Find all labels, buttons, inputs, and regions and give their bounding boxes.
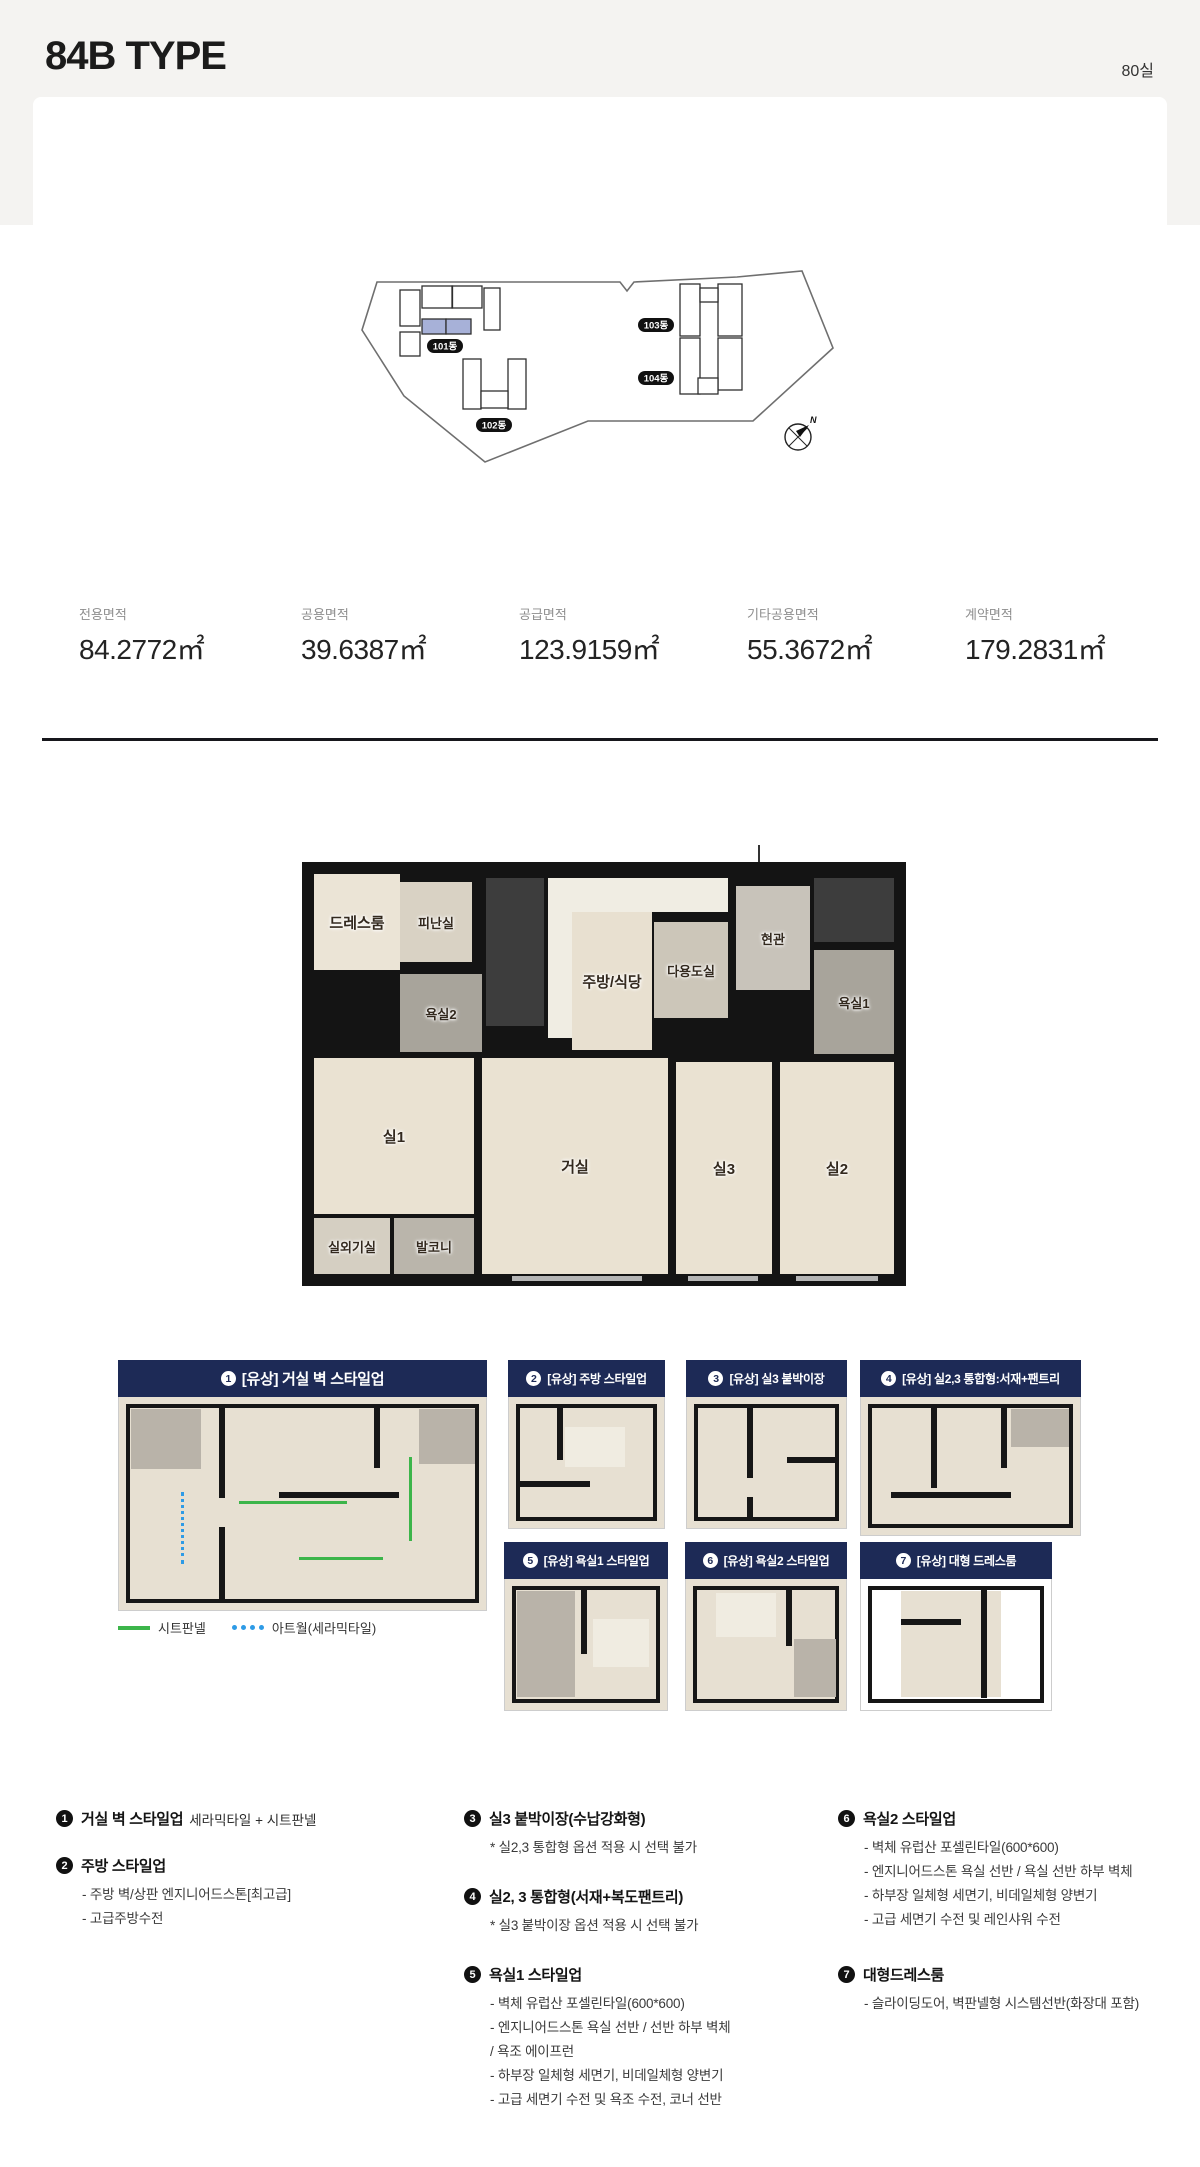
option-thumb-4: 4 [유상] 실2,3 통합형:서재+팬트리 xyxy=(860,1360,1081,1536)
area-label: 전용면적 xyxy=(79,604,127,623)
note-line: - 하부장 일체형 세면기, 비데일체형 양변기 xyxy=(864,1884,1168,1908)
wall-segment xyxy=(747,1497,753,1517)
wall-segment xyxy=(747,1408,753,1478)
building-unit xyxy=(452,286,453,308)
building-unit xyxy=(400,290,420,326)
area-label: 계약면적 xyxy=(965,604,1013,623)
building-unit xyxy=(463,359,481,409)
option-thumb-2: 2 [유상] 주방 스타일업 xyxy=(508,1360,665,1529)
note-title: 욕실1 스타일업 xyxy=(489,1964,582,1985)
note-title: 주방 스타일업 xyxy=(81,1855,166,1876)
wall-segment xyxy=(981,1590,987,1698)
building-unit xyxy=(508,359,526,409)
legend-label: 아트월(세라믹타일) xyxy=(272,1618,376,1637)
note-title: 실2, 3 통합형(서재+복도팬트리) xyxy=(489,1886,683,1907)
option-thumb-image xyxy=(686,1397,847,1529)
building-unit xyxy=(680,284,700,336)
utility-shaft xyxy=(814,878,894,942)
option-title: [유상] 거실 벽 스타일업 xyxy=(242,1368,385,1389)
note-item: 2 주방 스타일업 - 주방 벽/상판 엔지니어드스톤[최고급] - 고급주방수… xyxy=(56,1855,406,1931)
room-bath1: 욕실1 xyxy=(814,950,894,1054)
note-title: 실3 붙박이장(수납강화형) xyxy=(489,1808,645,1829)
room-2: 실2 xyxy=(780,1062,894,1274)
option-title: [유상] 주방 스타일업 xyxy=(547,1370,646,1387)
notes-column-1: 1 거실 벽 스타일업 세라믹타일 + 시트판넬 2 주방 스타일업 - 주방 … xyxy=(56,1808,406,1957)
building-label: 101동 xyxy=(433,342,458,353)
option-thumb-header: 5 [유상] 욕실1 스타일업 xyxy=(504,1542,668,1579)
window xyxy=(796,1276,878,1281)
note-line: * 실3 붙박이장 옵션 적용 시 선택 불가 xyxy=(490,1914,824,1938)
note-item: 6 욕실2 스타일업 - 벽체 유럽산 포셀린타일(600*600) - 엔지니… xyxy=(838,1808,1168,1932)
option-thumb-image xyxy=(860,1579,1052,1711)
room-refuge: 피난실 xyxy=(400,882,472,962)
option-number-badge: 6 xyxy=(703,1553,718,1568)
window xyxy=(688,1276,758,1281)
building-label: 104동 xyxy=(644,374,669,385)
fixture-patch xyxy=(716,1593,776,1637)
note-line: - 엔지니어드스톤 욕실 선반 / 욕실 선반 하부 벽체 xyxy=(864,1860,1168,1884)
wall-segment xyxy=(786,1590,792,1646)
room-living: 거실 xyxy=(482,1058,668,1274)
site-plan: 101동 102동 103동 104동 xyxy=(250,260,840,475)
area-value: 39.6387㎡ xyxy=(301,628,426,668)
room-bath2: 욕실2 xyxy=(400,974,482,1052)
wall-segment xyxy=(891,1492,1011,1498)
building-unit xyxy=(400,332,420,356)
wall-segment xyxy=(520,1481,590,1487)
bath-patch xyxy=(1011,1409,1069,1447)
note-number-badge: 4 xyxy=(464,1888,481,1905)
option-title: [유상] 욕실2 스타일업 xyxy=(724,1552,830,1569)
option-thumb-6: 6 [유상] 욕실2 스타일업 xyxy=(685,1542,847,1711)
artwall-swatch xyxy=(232,1625,264,1630)
note-number-badge: 3 xyxy=(464,1810,481,1827)
area-value: 179.2831㎡ xyxy=(965,628,1105,668)
utility-shaft xyxy=(486,878,544,1026)
room-3: 실3 xyxy=(676,1062,772,1274)
option-number-badge: 2 xyxy=(526,1371,541,1386)
wall-segment xyxy=(931,1408,937,1488)
option-thumb-header: 2 [유상] 주방 스타일업 xyxy=(508,1360,665,1397)
note-suffix: 세라믹타일 + 시트판넬 xyxy=(189,1809,316,1829)
note-item: 3 실3 붙박이장(수납강화형) * 실2,3 통합형 옵션 적용 시 선택 불… xyxy=(464,1808,824,1860)
option-thumb-image xyxy=(860,1397,1081,1536)
compass-n-label: N xyxy=(810,415,817,425)
building-unit-highlighted xyxy=(422,319,446,334)
area-value: 123.9159㎡ xyxy=(519,628,659,668)
room-1: 실1 xyxy=(314,1058,474,1214)
building-unit xyxy=(680,338,700,394)
page: 84B TYPE 80실 101동 10 xyxy=(0,0,1200,2167)
option-thumb-header: 1 [유상] 거실 벽 스타일업 xyxy=(118,1360,487,1397)
wall-segment xyxy=(557,1408,563,1460)
dot xyxy=(250,1625,255,1630)
wall-segment xyxy=(787,1457,837,1463)
note-line: - 고급 세면기 수전 및 레인샤워 수전 xyxy=(864,1908,1168,1932)
wall-segment xyxy=(219,1527,225,1599)
note-number-badge: 7 xyxy=(838,1966,855,1983)
room-balcony: 발코니 xyxy=(394,1218,474,1274)
option-number-badge: 3 xyxy=(708,1371,723,1386)
dot xyxy=(259,1625,264,1630)
building-label: 103동 xyxy=(644,321,669,332)
note-line: - 벽체 유럽산 포셀린타일(600*600) xyxy=(864,1836,1168,1860)
page-title: 84B TYPE xyxy=(45,34,226,79)
bath-patch xyxy=(419,1409,475,1464)
counter-patch xyxy=(565,1427,625,1467)
option-thumb-7: 7 [유상] 대형 드레스룸 xyxy=(860,1542,1052,1711)
sheet-panel-line xyxy=(409,1457,412,1541)
area-label: 기타공용면적 xyxy=(747,604,819,623)
room-kitchen: 주방/식당 xyxy=(572,912,652,1050)
option-thumb-header: 3 [유상] 실3 붙박이장 xyxy=(686,1360,847,1397)
area-value: 55.3672㎡ xyxy=(747,628,872,668)
building-label: 102동 xyxy=(482,421,507,432)
option-title: [유상] 실2,3 통합형:서재+팬트리 xyxy=(902,1370,1060,1387)
option-thumb-5: 5 [유상] 욕실1 스타일업 xyxy=(504,1542,668,1711)
notes-column-3: 6 욕실2 스타일업 - 벽체 유럽산 포셀린타일(600*600) - 엔지니… xyxy=(838,1808,1168,2042)
building-unit xyxy=(481,391,508,408)
wall-segment xyxy=(374,1408,380,1468)
building-unit xyxy=(698,378,718,394)
option-thumb-header: 7 [유상] 대형 드레스룸 xyxy=(860,1542,1052,1579)
note-line: - 엔지니어드스톤 욕실 선반 / 선반 하부 벽체 xyxy=(490,2016,824,2040)
section-divider xyxy=(42,738,1158,741)
site-plan-svg: 101동 102동 103동 104동 xyxy=(250,260,840,475)
note-item: 7 대형드레스룸 - 슬라이딩도어, 벽판넬형 시스템선반(화장대 포함) xyxy=(838,1964,1168,2016)
dot xyxy=(241,1625,246,1630)
note-line: - 벽체 유럽산 포셀린타일(600*600) xyxy=(490,1992,824,2016)
window xyxy=(512,1276,642,1281)
note-item: 4 실2, 3 통합형(서재+복도팬트리) * 실3 붙박이장 옵션 적용 시 … xyxy=(464,1886,824,1938)
wall-segment xyxy=(1001,1408,1007,1468)
area-label: 공용면적 xyxy=(301,604,349,623)
building-103-104: 103동 104동 xyxy=(638,284,742,394)
floor-plan: 드레스룸 피난실 욕실2 주방/식당 다용도실 현관 욕실1 실1 거실 실3 … xyxy=(302,862,906,1286)
option-title: [유상] 대형 드레스룸 xyxy=(917,1552,1016,1569)
option-number-badge: 7 xyxy=(896,1553,911,1568)
dot xyxy=(232,1625,237,1630)
note-line: - 슬라이딩도어, 벽판넬형 시스템선반(화장대 포함) xyxy=(864,1992,1168,2016)
area-label: 공급면적 xyxy=(519,604,567,623)
option-number-badge: 4 xyxy=(881,1371,896,1386)
compass-icon: N xyxy=(785,415,817,450)
building-unit xyxy=(700,288,718,302)
room-entrance: 현관 xyxy=(736,886,810,990)
wall-segment xyxy=(219,1408,225,1498)
building-102: 102동 xyxy=(463,359,526,432)
sheet-panel-line xyxy=(299,1557,383,1560)
building-unit xyxy=(718,284,742,336)
note-number-badge: 2 xyxy=(56,1857,73,1874)
building-unit xyxy=(484,288,500,330)
bath-patch xyxy=(131,1409,201,1469)
bath-patch xyxy=(794,1639,836,1697)
note-line: / 욕조 에이프런 xyxy=(490,2040,824,2064)
legend-label: 시트판넬 xyxy=(158,1618,206,1637)
area-value: 84.2772㎡ xyxy=(79,628,204,668)
note-line: - 고급주방수전 xyxy=(82,1907,406,1931)
note-item: 1 거실 벽 스타일업 세라믹타일 + 시트판넬 xyxy=(56,1808,406,1829)
option-thumb-1: 1 [유상] 거실 벽 스타일업 xyxy=(118,1360,487,1611)
option-thumb-image xyxy=(118,1397,487,1611)
wall-segment xyxy=(901,1619,961,1625)
sheet-panel-line xyxy=(239,1501,347,1504)
option-thumb-image xyxy=(685,1579,847,1711)
note-line: - 주방 벽/상판 엔지니어드스톤[최고급] xyxy=(82,1883,406,1907)
bath-patch xyxy=(517,1591,575,1697)
option-thumb-3: 3 [유상] 실3 붙박이장 xyxy=(686,1360,847,1529)
building-unit-highlighted xyxy=(446,319,471,334)
plan-legend: 시트판넬 아트월(세라믹타일) xyxy=(118,1618,376,1637)
option-number-badge: 1 xyxy=(221,1371,236,1386)
option-title: [유상] 욕실1 스타일업 xyxy=(544,1552,650,1569)
note-line: - 하부장 일체형 세면기, 비데일체형 양변기 xyxy=(490,2064,824,2088)
fixture-patch xyxy=(593,1619,649,1667)
option-title: [유상] 실3 붙박이장 xyxy=(729,1370,824,1387)
artwall-dotted-line xyxy=(181,1492,184,1564)
wall-segment xyxy=(279,1492,399,1498)
room-utility: 다용도실 xyxy=(654,922,728,1018)
room-dressroom: 드레스룸 xyxy=(314,874,400,970)
note-line: * 실2,3 통합형 옵션 적용 시 선택 불가 xyxy=(490,1836,824,1860)
building-unit xyxy=(718,338,742,390)
room-ac-unit: 실외기실 xyxy=(314,1218,390,1274)
note-line: - 고급 세면기 수전 및 욕조 수전, 코너 선반 xyxy=(490,2088,824,2112)
kitchen-counter xyxy=(548,878,572,1038)
unit-count: 80실 xyxy=(1121,57,1154,81)
note-number-badge: 5 xyxy=(464,1966,481,1983)
note-title: 거실 벽 스타일업 xyxy=(81,1808,183,1829)
option-thumb-header: 6 [유상] 욕실2 스타일업 xyxy=(685,1542,847,1579)
option-number-badge: 5 xyxy=(523,1553,538,1568)
note-number-badge: 6 xyxy=(838,1810,855,1827)
sheet-panel-swatch xyxy=(118,1626,150,1630)
note-number-badge: 1 xyxy=(56,1810,73,1827)
notes-column-2: 3 실3 붙박이장(수납강화형) * 실2,3 통합형 옵션 적용 시 선택 불… xyxy=(464,1808,824,2138)
option-thumb-image xyxy=(504,1579,668,1711)
building-101: 101동 xyxy=(400,286,500,356)
note-title: 대형드레스룸 xyxy=(863,1964,944,1985)
option-thumb-image xyxy=(508,1397,665,1529)
option-thumb-header: 4 [유상] 실2,3 통합형:서재+팬트리 xyxy=(860,1360,1081,1397)
kitchen-counter xyxy=(548,878,728,912)
wall-segment xyxy=(581,1590,587,1654)
note-title: 욕실2 스타일업 xyxy=(863,1808,956,1829)
note-item: 5 욕실1 스타일업 - 벽체 유럽산 포셀린타일(600*600) - 엔지니… xyxy=(464,1964,824,2112)
